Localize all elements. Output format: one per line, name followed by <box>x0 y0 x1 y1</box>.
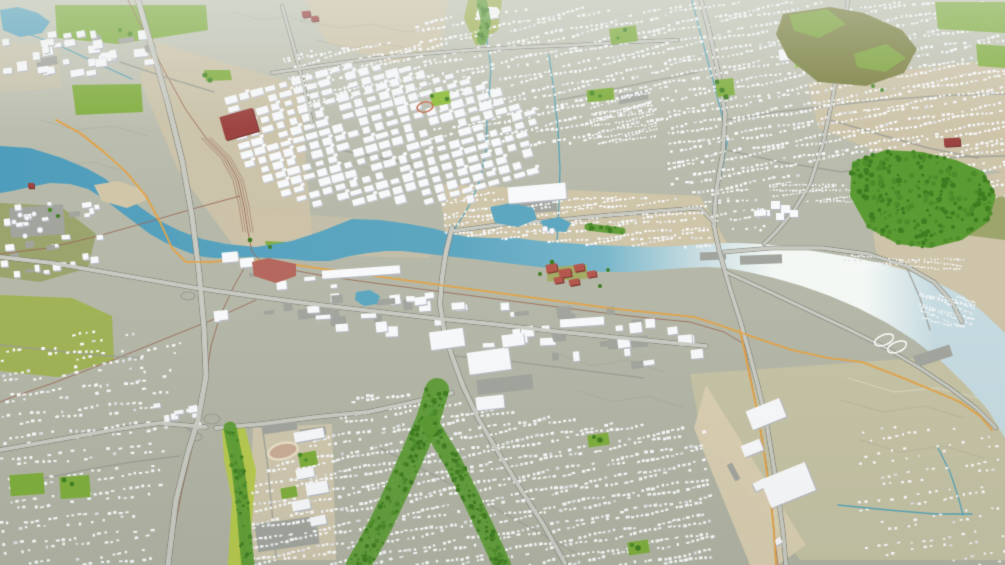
map-viewport <box>0 0 1005 565</box>
city-3d-map-canvas[interactable] <box>0 0 1005 565</box>
